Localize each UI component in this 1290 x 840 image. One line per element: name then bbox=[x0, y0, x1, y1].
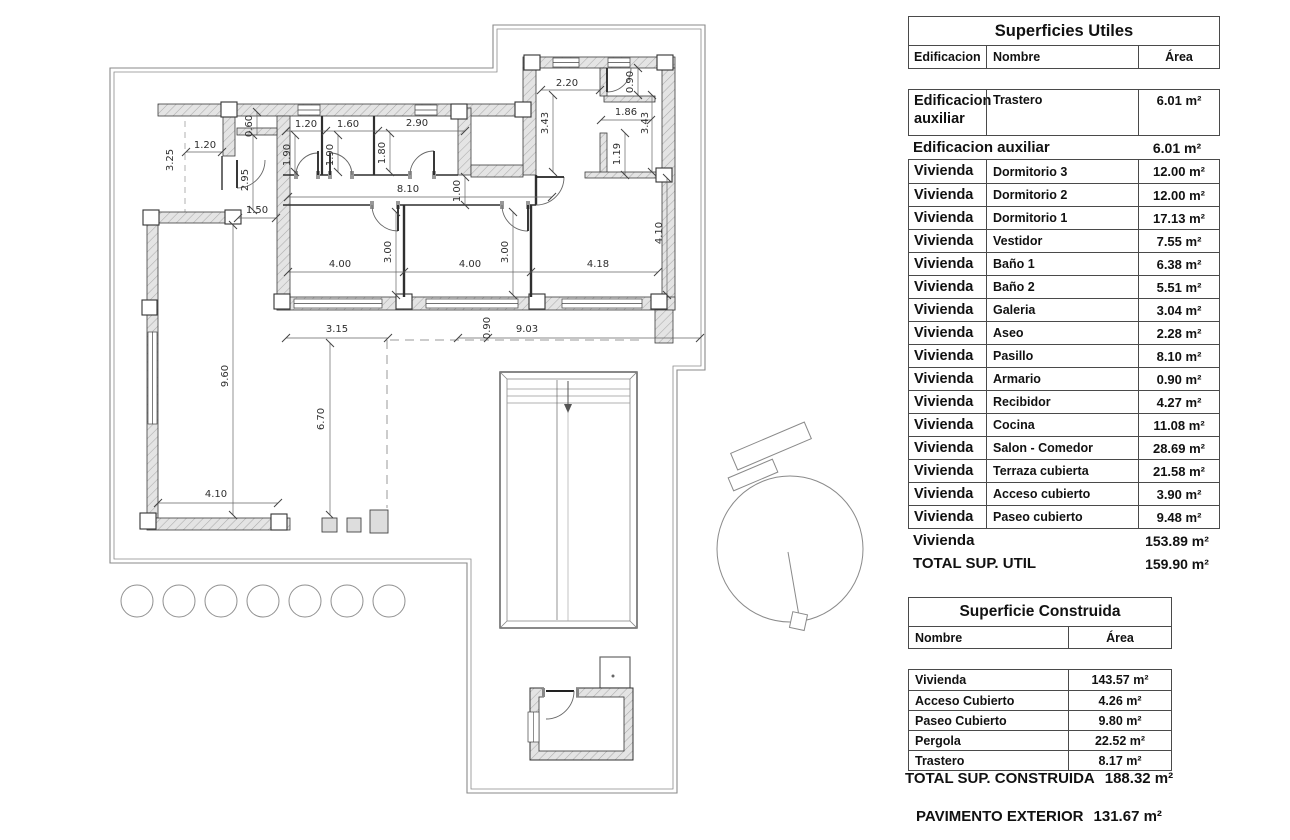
table-row: Vivienda Baño 2 5.51 m² bbox=[909, 275, 1219, 298]
cell-area: 2.28 m² bbox=[1139, 322, 1219, 344]
pavimento-exterior-line: PAVIMENTO EXTERIOR 131.67 m² bbox=[916, 808, 1162, 825]
cell-nombre: Trastero bbox=[909, 751, 1069, 770]
cell-nombre: Vestidor bbox=[986, 230, 1139, 252]
tree-icon bbox=[289, 585, 321, 617]
cell-nombre: Acceso cubierto bbox=[986, 483, 1139, 505]
subtotal-value: 153.89 m² bbox=[1134, 533, 1220, 549]
cell-area: 7.55 m² bbox=[1139, 230, 1219, 252]
cell-nombre: Trastero bbox=[986, 90, 1139, 135]
table-row: Acceso Cubierto 4.26 m² bbox=[909, 690, 1171, 710]
total-value: 159.90 m² bbox=[1134, 556, 1220, 572]
dimension-label: 3.43 bbox=[540, 112, 551, 134]
dimension-label: 0.60 bbox=[244, 115, 255, 137]
cell-area: 11.08 m² bbox=[1139, 414, 1219, 436]
cell-area: 6.38 m² bbox=[1139, 253, 1219, 275]
cell-edificacion: Vivienda bbox=[909, 276, 986, 298]
dimension-label: 8.10 bbox=[397, 184, 419, 195]
cell-area: 21.58 m² bbox=[1139, 460, 1219, 482]
pergola-posts bbox=[322, 510, 388, 533]
utiles-header-box: Superficies Utiles Edificacion Nombre Ár… bbox=[908, 16, 1220, 69]
cell-nombre: Dormitorio 2 bbox=[986, 184, 1139, 206]
cell-edificacion: Vivienda bbox=[909, 299, 986, 321]
cell-edificacion: Vivienda bbox=[909, 160, 986, 183]
cell-edificacion: Vivienda bbox=[909, 506, 986, 528]
trastero-annex-box bbox=[600, 657, 630, 688]
tree-canopy-icon bbox=[717, 476, 863, 622]
cell-nombre: Cocina bbox=[986, 414, 1139, 436]
cell-nombre: Recibidor bbox=[986, 391, 1139, 413]
cell-nombre: Vivienda bbox=[909, 670, 1069, 690]
cell-area: 3.90 m² bbox=[1139, 483, 1219, 505]
cell-area: 143.57 m² bbox=[1069, 673, 1171, 687]
subtotal-label: Vivienda bbox=[913, 532, 974, 549]
dimension-label: 1.20 bbox=[194, 140, 216, 151]
construida-rows-box: Vivienda 143.57 m² Acceso Cubierto 4.26 … bbox=[908, 669, 1172, 771]
dimension-label: 3.00 bbox=[383, 241, 394, 263]
dimension-label: 4.00 bbox=[329, 259, 351, 270]
subtotal-label: Edificacion auxiliar bbox=[913, 139, 1050, 156]
column-header-nombre: Nombre bbox=[986, 46, 1139, 68]
table-row: Vivienda Baño 1 6.38 m² bbox=[909, 252, 1219, 275]
cell-edificacion: Vivienda bbox=[909, 184, 986, 206]
cell-area: 5.51 m² bbox=[1139, 276, 1219, 298]
construida-table-title: Superficie Construida bbox=[909, 598, 1171, 627]
dimension-label: 3.43 bbox=[640, 112, 651, 134]
table-row: Vivienda Salon - Comedor 28.69 m² bbox=[909, 436, 1219, 459]
cell-edificacion: Vivienda bbox=[909, 345, 986, 367]
utiles-aux-box: Edificacion auxiliar Trastero 6.01 m² bbox=[908, 89, 1220, 136]
dimension-label: 1.90 bbox=[325, 144, 336, 166]
cell-nombre: Terraza cubierta bbox=[986, 460, 1139, 482]
cell-edificacion: Vivienda bbox=[909, 460, 986, 482]
dimension-label: 4.10 bbox=[654, 222, 665, 244]
dimension-label: 1.19 bbox=[612, 143, 623, 165]
swimming-pool bbox=[500, 372, 637, 628]
cell-edificacion: Vivienda bbox=[909, 230, 986, 252]
table-row: Vivienda Acceso cubierto 3.90 m² bbox=[909, 482, 1219, 505]
cell-area: 0.90 m² bbox=[1139, 368, 1219, 390]
cell-edificacion: Vivienda bbox=[909, 483, 986, 505]
cell-area: 9.48 m² bbox=[1139, 506, 1219, 528]
utiles-rows-box: Vivienda Dormitorio 3 12.00 m² Vivienda … bbox=[908, 159, 1220, 529]
tree-icon bbox=[121, 585, 153, 617]
superficie-construida-table: Superficie Construida Nombre Área Vivien… bbox=[908, 597, 1172, 771]
utiles-column-headers: Edificacion Nombre Área bbox=[909, 46, 1219, 68]
column-header-edificacion: Edificacion bbox=[909, 50, 986, 64]
table-row: Vivienda 143.57 m² bbox=[909, 670, 1171, 690]
vivienda-subtotal-row: Vivienda 153.89 m² bbox=[908, 529, 1220, 552]
cell-nombre: Galeria bbox=[986, 299, 1139, 321]
table-row: Vivienda Recibidor 4.27 m² bbox=[909, 390, 1219, 413]
dimension-label: 9.03 bbox=[516, 324, 538, 335]
table-row: Vivienda Aseo 2.28 m² bbox=[909, 321, 1219, 344]
cell-edificacion: Vivienda bbox=[909, 437, 986, 459]
dimension-label: 0.90 bbox=[625, 71, 636, 93]
dimension-label: 9.60 bbox=[220, 365, 231, 387]
table-row: Vivienda Dormitorio 1 17.13 m² bbox=[909, 206, 1219, 229]
cell-area: 4.26 m² bbox=[1069, 694, 1171, 708]
floorplan-sheet: 3.25 1.20 0.60 2.95 1.50 1.20 1.90 1.60 … bbox=[0, 0, 1290, 840]
dimension-label: 1.86 bbox=[615, 107, 637, 118]
table-row: Vivienda Armario 0.90 m² bbox=[909, 367, 1219, 390]
table-row: Vivienda Cocina 11.08 m² bbox=[909, 413, 1219, 436]
table-row: Vivienda Vestidor 7.55 m² bbox=[909, 229, 1219, 252]
total-sup-construida-line: TOTAL SUP. CONSTRUIDA 188.32 m² bbox=[905, 770, 1173, 787]
dimension-label: 4.10 bbox=[205, 489, 227, 500]
cell-edificacion: Vivienda bbox=[909, 322, 986, 344]
door-arcs bbox=[237, 68, 631, 231]
tree-icon bbox=[247, 585, 279, 617]
table-row: Pergola 22.52 m² bbox=[909, 730, 1171, 750]
total-label: TOTAL SUP. UTIL bbox=[913, 555, 1036, 572]
dimension-label: 1.00 bbox=[452, 180, 463, 202]
cell-edificacion: Vivienda bbox=[909, 414, 986, 436]
dimension-label: 1.50 bbox=[246, 205, 268, 216]
total-construida-value: 188.32 m² bbox=[1105, 770, 1173, 787]
tree-icon bbox=[331, 585, 363, 617]
table-row: Paseo Cubierto 9.80 m² bbox=[909, 710, 1171, 730]
cell-area: 8.17 m² bbox=[1069, 754, 1171, 768]
tree-icon bbox=[163, 585, 195, 617]
garden-tree bbox=[717, 422, 863, 630]
dimension-label: 3.00 bbox=[500, 241, 511, 263]
dimension-label: 4.18 bbox=[587, 259, 609, 270]
cell-edificacion: Vivienda bbox=[909, 253, 986, 275]
dimension-label: 1.60 bbox=[337, 119, 359, 130]
table-row: Vivienda Galeria 3.04 m² bbox=[909, 298, 1219, 321]
superficies-utiles-table: Superficies Utiles Edificacion Nombre Ár… bbox=[908, 16, 1220, 575]
cell-area: 22.52 m² bbox=[1069, 734, 1171, 748]
table-row: Vivienda Pasillo 8.10 m² bbox=[909, 344, 1219, 367]
cell-edificacion: Vivienda bbox=[909, 368, 986, 390]
dimension-label: 3.25 bbox=[165, 149, 176, 171]
table-row: Edificacion auxiliar Trastero 6.01 m² bbox=[909, 90, 1219, 135]
cell-nombre: Dormitorio 1 bbox=[986, 207, 1139, 229]
dimension-label: 1.80 bbox=[377, 142, 388, 164]
construida-header-box: Superficie Construida Nombre Área bbox=[908, 597, 1172, 649]
cell-nombre: Paseo Cubierto bbox=[909, 711, 1069, 730]
cell-nombre: Pergola bbox=[909, 731, 1069, 750]
dimension-label: 4.00 bbox=[459, 259, 481, 270]
dimension-label: 2.20 bbox=[556, 78, 578, 89]
cell-area: 12.00 m² bbox=[1139, 160, 1219, 183]
dimension-label: 6.70 bbox=[316, 408, 327, 430]
cell-area: 17.13 m² bbox=[1139, 207, 1219, 229]
cell-nombre: Acceso Cubierto bbox=[909, 691, 1069, 710]
cell-area: 6.01 m² bbox=[1139, 90, 1219, 135]
dimension-label: 3.15 bbox=[326, 324, 348, 335]
tree-icon bbox=[373, 585, 405, 617]
subtotal-value: 6.01 m² bbox=[1134, 140, 1220, 156]
cell-edificacion: Vivienda bbox=[909, 207, 986, 229]
cell-nombre: Salon - Comedor bbox=[986, 437, 1139, 459]
cell-nombre: Baño 1 bbox=[986, 253, 1139, 275]
pavimento-value: 131.67 m² bbox=[1094, 808, 1162, 825]
dimension-label: 1.90 bbox=[282, 144, 293, 166]
floor-plan-drawing: 3.25 1.20 0.60 2.95 1.50 1.20 1.90 1.60 … bbox=[0, 0, 905, 840]
cell-nombre: Dormitorio 3 bbox=[986, 160, 1139, 183]
trastero-building bbox=[528, 657, 633, 760]
table-row: Vivienda Dormitorio 3 12.00 m² bbox=[909, 160, 1219, 183]
aux-subtotal-row: Edificacion auxiliar 6.01 m² bbox=[908, 136, 1220, 159]
dimension-label: 2.95 bbox=[240, 169, 251, 191]
column-header-area: Área bbox=[1139, 50, 1219, 64]
cell-edificacion: Vivienda bbox=[909, 391, 986, 413]
street-trees bbox=[121, 585, 405, 617]
tree-icon bbox=[205, 585, 237, 617]
dimension-label: 0.90 bbox=[482, 317, 493, 339]
cell-nombre: Armario bbox=[986, 368, 1139, 390]
table-row: Vivienda Dormitorio 2 12.00 m² bbox=[909, 183, 1219, 206]
construida-column-headers: Nombre Área bbox=[909, 627, 1171, 648]
cell-area: 28.69 m² bbox=[1139, 437, 1219, 459]
table-row: Trastero 8.17 m² bbox=[909, 750, 1171, 770]
pavimento-label: PAVIMENTO EXTERIOR bbox=[916, 808, 1084, 825]
total-sup-util-row: TOTAL SUP. UTIL 159.90 m² bbox=[908, 552, 1220, 575]
cell-area: 9.80 m² bbox=[1069, 714, 1171, 728]
cell-nombre: Pasillo bbox=[986, 345, 1139, 367]
table-row: Vivienda Terraza cubierta 21.58 m² bbox=[909, 459, 1219, 482]
cell-edificacion: Edificacion auxiliar bbox=[909, 90, 986, 135]
column-header-nombre: Nombre bbox=[909, 627, 1069, 648]
dimension-label: 1.20 bbox=[295, 119, 317, 130]
table-row: Vivienda Paseo cubierto 9.48 m² bbox=[909, 505, 1219, 528]
column-header-area: Área bbox=[1069, 631, 1171, 645]
cell-nombre: Baño 2 bbox=[986, 276, 1139, 298]
total-construida-label: TOTAL SUP. CONSTRUIDA bbox=[905, 770, 1095, 787]
cell-nombre: Aseo bbox=[986, 322, 1139, 344]
cell-area: 8.10 m² bbox=[1139, 345, 1219, 367]
dimension-label: 2.90 bbox=[406, 118, 428, 129]
cell-area: 12.00 m² bbox=[1139, 184, 1219, 206]
cell-area: 4.27 m² bbox=[1139, 391, 1219, 413]
cell-nombre: Paseo cubierto bbox=[986, 506, 1139, 528]
cell-area: 3.04 m² bbox=[1139, 299, 1219, 321]
utiles-table-title: Superficies Utiles bbox=[909, 17, 1219, 46]
